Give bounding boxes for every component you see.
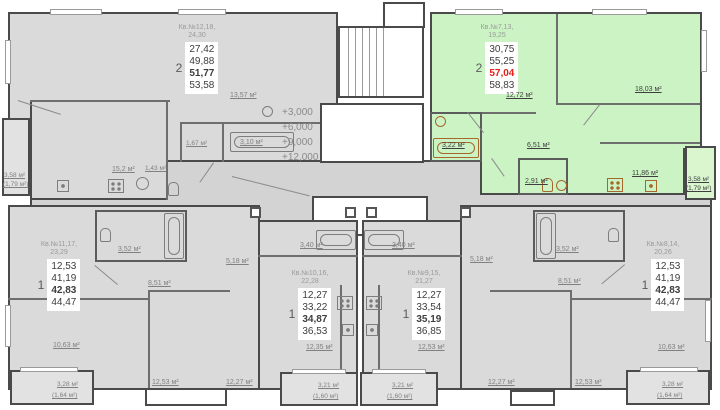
stairwell: [338, 26, 424, 98]
room-area-label: (1,79 м²): [686, 185, 711, 193]
area-no-balcony: 41,19: [51, 273, 76, 285]
apartment-number-2: 21,27: [386, 278, 462, 286]
selected-area: 42,83: [655, 285, 680, 297]
stair-landing: [383, 2, 425, 28]
wall: [148, 290, 230, 292]
room-area-label: 12,72 м²: [506, 92, 533, 100]
rooms-count: 2: [476, 61, 483, 75]
rooms-count: 2: [176, 61, 183, 75]
room-area-label: 10,63 м²: [53, 342, 80, 350]
apartment-9-15-info: Кв.№9,15, 21,27 1 12,27 33,54 35,19 36,8…: [386, 270, 462, 340]
room-area-label: 5,18 м²: [226, 258, 249, 266]
stair-tread: [362, 28, 363, 96]
vent-shaft: [460, 207, 471, 218]
room-area-label: 12,27 м²: [226, 379, 253, 387]
wall: [362, 255, 462, 257]
room-area-label: (1,79 м²): [3, 181, 28, 189]
toilet-icon: [608, 228, 619, 242]
living-area: 27,42: [189, 44, 214, 56]
rooms-count: 1: [38, 278, 45, 292]
elevation-mark: +12,000: [282, 150, 318, 165]
apartment-number: Кв.№11,17,: [18, 241, 100, 249]
area-table: 12,53 41,19 42,83 44,47: [47, 259, 80, 311]
window: [5, 40, 11, 84]
window: [701, 30, 707, 72]
vent-shaft: [345, 207, 356, 218]
room-area-label: 3,28 м²: [662, 381, 683, 389]
room-area-label: 3,28 м²: [57, 381, 78, 389]
wall: [556, 14, 558, 103]
room-area-label: 5,18 м²: [470, 256, 493, 264]
sink-icon: [435, 116, 446, 127]
total-area: 53,58: [189, 80, 214, 92]
total-area: 36,53: [302, 326, 327, 338]
room-area-label: 3,40 м²: [392, 242, 415, 250]
apartment-11-17-info: Кв.№11,17, 23,29 1 12,53 41,19 42,83 44,…: [18, 241, 100, 311]
apartment-number: Кв.№7,13,: [452, 24, 542, 32]
apartment-number-2: 20,26: [622, 249, 704, 257]
wall: [148, 290, 150, 388]
stair-tread: [369, 28, 370, 96]
selected-area: 57,04: [489, 68, 514, 80]
area-table: 30,75 55,25 57,04 58,83: [485, 42, 518, 94]
total-area: 44,47: [655, 297, 680, 309]
kitchen-sink-icon: [645, 180, 657, 192]
room-area-label: 3,21 м²: [392, 382, 413, 390]
apartment-10-16-info: Кв.№10,16, 22,28 1 12,27 33,22 34,87 36,…: [272, 270, 348, 340]
room-area-label: 3,52 м²: [556, 246, 579, 254]
room-area-label: 12,35 м²: [306, 344, 333, 352]
living-area: 30,75: [489, 44, 514, 56]
stove-icon: [366, 296, 382, 310]
window: [292, 369, 346, 374]
elevation-mark: +9,000: [282, 135, 318, 150]
window: [372, 369, 426, 374]
room-area-label: 8,51 м²: [558, 278, 581, 286]
area-table: 12,27 33,22 34,87 36,53: [298, 288, 331, 340]
room-area-label: 10,63 м²: [658, 344, 685, 352]
floor-plan: Кв.№12,18, 24,30 2 27,42 49,88 51,77 53,…: [0, 0, 720, 410]
selected-area: 42,83: [51, 285, 76, 297]
area-table: 12,27 33,54 35,19 36,85: [412, 288, 445, 340]
area-no-balcony: 33,22: [302, 302, 327, 314]
wall: [258, 255, 358, 257]
area-no-balcony: 55,25: [489, 56, 514, 68]
room-area-label: 8,51 м²: [148, 280, 171, 288]
living-area: 12,53: [51, 261, 76, 273]
elevation-mark: +6,000: [282, 120, 318, 135]
room-area-label: 6,51 м²: [527, 142, 550, 150]
wall: [600, 142, 700, 144]
total-area: 58,83: [489, 80, 514, 92]
selected-area: 51,77: [189, 68, 214, 80]
room-area-label: 11,86 м²: [632, 170, 658, 178]
rooms-count: 1: [403, 307, 410, 321]
entrance-porch: [145, 388, 227, 406]
appliance-icon: [57, 180, 69, 192]
room-area-label: 15,2 м²: [112, 166, 135, 174]
room-area-label: 3,10 м²: [240, 139, 263, 147]
sink-icon: [262, 106, 273, 117]
wall: [222, 122, 224, 162]
room-area-label: 3,58 м²: [4, 172, 25, 180]
living-area: 12,53: [655, 261, 680, 273]
toilet-icon: [168, 182, 179, 196]
room-area-label: (1,60 м²): [313, 393, 338, 401]
apartment-number-2: 19,25: [452, 32, 542, 40]
stove-icon: [607, 178, 623, 192]
window: [178, 9, 226, 15]
room-area-label: 1,43 м²: [145, 165, 166, 173]
apartment-7-13-info: Кв.№7,13, 19,25 2 30,75 55,25 57,04 58,8…: [452, 24, 542, 94]
entrance-porch: [510, 390, 555, 406]
bathtub-icon: [164, 213, 184, 259]
stair-tread: [355, 28, 356, 96]
apartment-12-18-info: Кв.№12,18, 24,30 2 27,42 49,88 51,77 53,…: [152, 24, 242, 94]
wall: [482, 112, 536, 114]
apartment-8-14-info: Кв.№8,14, 20,26 1 12,53 41,19 42,83 44,4…: [622, 241, 704, 311]
room-area-label: 3,22 м²: [442, 142, 465, 150]
room-area-label: 13,57 м²: [230, 92, 257, 100]
room-area-label: 12,53 м²: [152, 379, 179, 387]
room-area-label: 12,53 м²: [418, 344, 445, 352]
window: [50, 9, 102, 15]
window: [5, 305, 11, 347]
living-area: 12,27: [302, 290, 327, 302]
apartment-number: Кв.№10,16,: [272, 270, 348, 278]
room-area-label: 18,03 м²: [635, 86, 662, 94]
rooms-count: 1: [642, 278, 649, 292]
selected-area: 35,19: [416, 314, 441, 326]
room-area-label: 12,53 м²: [575, 379, 602, 387]
window: [640, 367, 698, 372]
room-area-label: (1,64 м²): [52, 392, 77, 400]
apartment-number: Кв.№9,15,: [386, 270, 462, 278]
room-area-label: 3,21 м²: [318, 382, 339, 390]
area-table: 27,42 49,88 51,77 53,58: [185, 42, 218, 94]
toilet-icon: [100, 228, 111, 242]
stair-tread: [383, 28, 384, 96]
room-area-label: 2,91 м²: [525, 178, 548, 186]
room-area-label: 1,67 м²: [186, 140, 207, 148]
vent-shaft: [250, 207, 261, 218]
bathtub-icon: [536, 213, 556, 259]
window: [705, 300, 711, 342]
window: [20, 367, 78, 372]
room-area-label: 3,58 м²: [688, 176, 709, 184]
area-no-balcony: 33,54: [416, 302, 441, 314]
wall: [30, 100, 170, 102]
sink-icon: [136, 177, 149, 190]
rooms-count: 1: [289, 307, 296, 321]
total-area: 36,85: [416, 326, 441, 338]
apartment-number: Кв.№8,14,: [622, 241, 704, 249]
room-area-label: (1,60 м²): [387, 393, 412, 401]
sink-icon: [556, 180, 567, 191]
apartment-number-2: 22,28: [272, 278, 348, 286]
stair-tread: [376, 28, 377, 96]
elevation-marks: +3,000 +6,000 +9,000 +12,000: [282, 105, 318, 165]
room-area-label: 3,52 м²: [118, 246, 141, 254]
apartment-number: Кв.№12,18,: [152, 24, 242, 32]
area-table: 12,53 41,19 42,83 44,47: [651, 259, 684, 311]
elevation-mark: +3,000: [282, 105, 318, 120]
living-area: 12,27: [416, 290, 441, 302]
stove-icon: [108, 179, 124, 193]
window: [592, 9, 647, 15]
apartment-number-2: 23,29: [18, 249, 100, 257]
appliance-icon: [366, 324, 378, 336]
elevator-shaft: [320, 103, 424, 163]
total-area: 44,47: [51, 297, 76, 309]
wall: [556, 103, 700, 105]
area-no-balcony: 41,19: [655, 273, 680, 285]
area-no-balcony: 49,88: [189, 56, 214, 68]
vent-shaft: [366, 207, 377, 218]
wall: [180, 122, 182, 162]
stair-tread: [348, 28, 349, 96]
window: [455, 9, 503, 15]
selected-area: 34,87: [302, 314, 327, 326]
apartment-number-2: 24,30: [152, 32, 242, 40]
wall: [490, 290, 572, 292]
room-area-label: 12,27 м²: [488, 379, 515, 387]
wall: [570, 290, 572, 388]
room-area-label: 3,40 м²: [300, 242, 323, 250]
room-area-label: (1,64 м²): [657, 392, 682, 400]
